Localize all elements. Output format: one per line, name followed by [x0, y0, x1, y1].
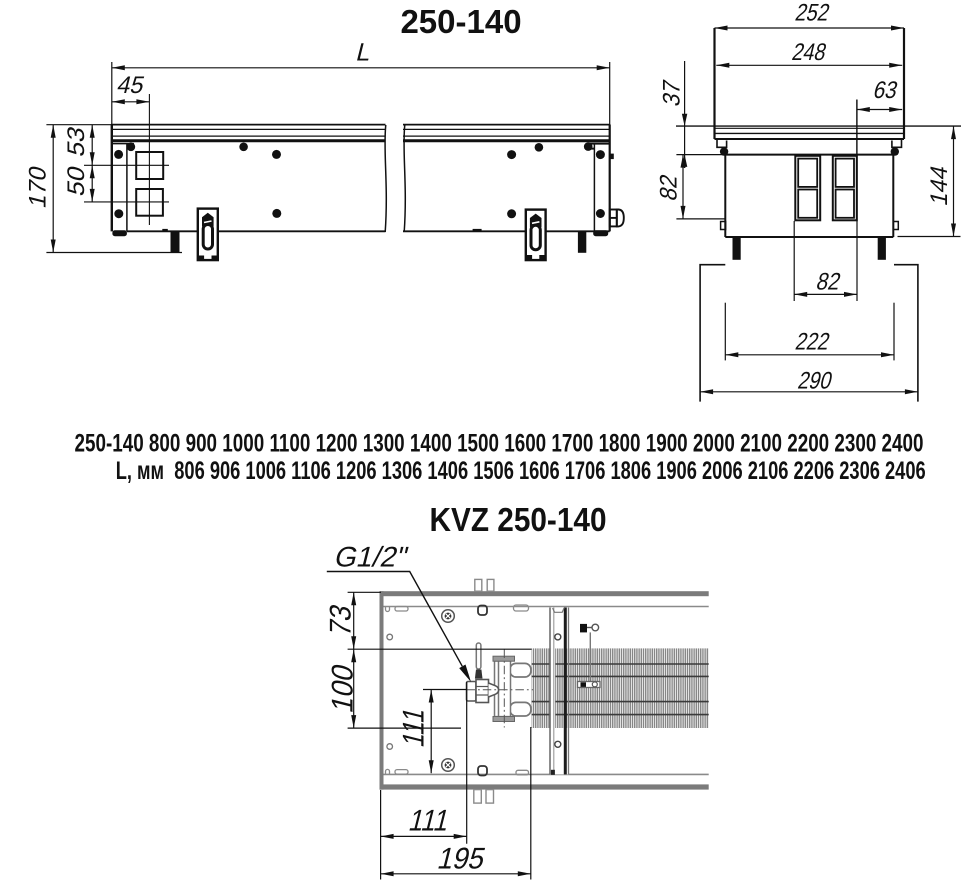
svg-text:100: 100 — [326, 660, 359, 715]
svg-text:250-140: 250-140 — [400, 3, 521, 40]
svg-text:252: 252 — [793, 0, 833, 26]
svg-text:222: 222 — [793, 329, 833, 356]
svg-text:250-140 800 900 1000 1100 1200: 250-140 800 900 1000 1100 1200 1300 1400… — [75, 430, 924, 458]
svg-text:L, мм 806 906 1006 1106 1206: L, мм 806 906 1006 1106 1206 1306 1406 1… — [116, 457, 926, 485]
svg-text:111: 111 — [406, 804, 453, 837]
svg-text:G1/2": G1/2" — [331, 542, 411, 574]
svg-text:195: 195 — [434, 842, 488, 875]
svg-text:248: 248 — [790, 39, 830, 66]
svg-text:290: 290 — [795, 368, 835, 395]
svg-text:170: 170 — [25, 163, 52, 211]
svg-text:144: 144 — [926, 163, 953, 209]
svg-text:KVZ 250-140: KVZ 250-140 — [430, 501, 607, 538]
